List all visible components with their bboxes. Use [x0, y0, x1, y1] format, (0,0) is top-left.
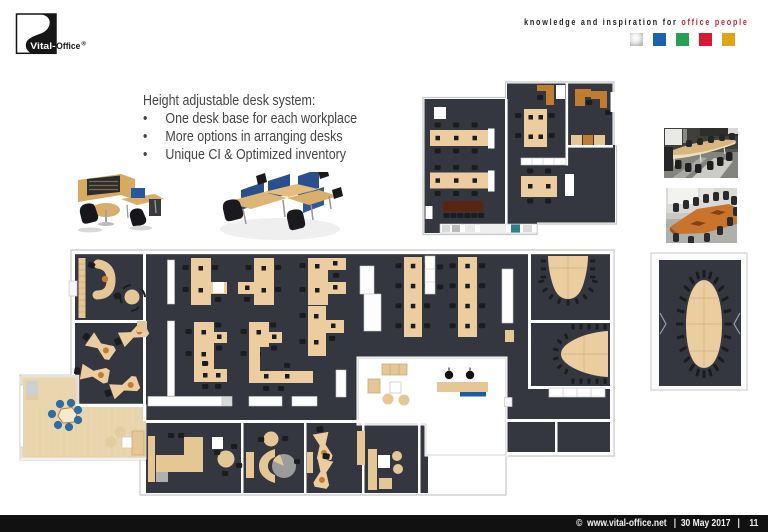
- svg-text:®: ®: [82, 41, 87, 48]
- svg-text:Office: Office: [56, 41, 80, 52]
- svg-text:Vital-: Vital-: [30, 41, 55, 52]
